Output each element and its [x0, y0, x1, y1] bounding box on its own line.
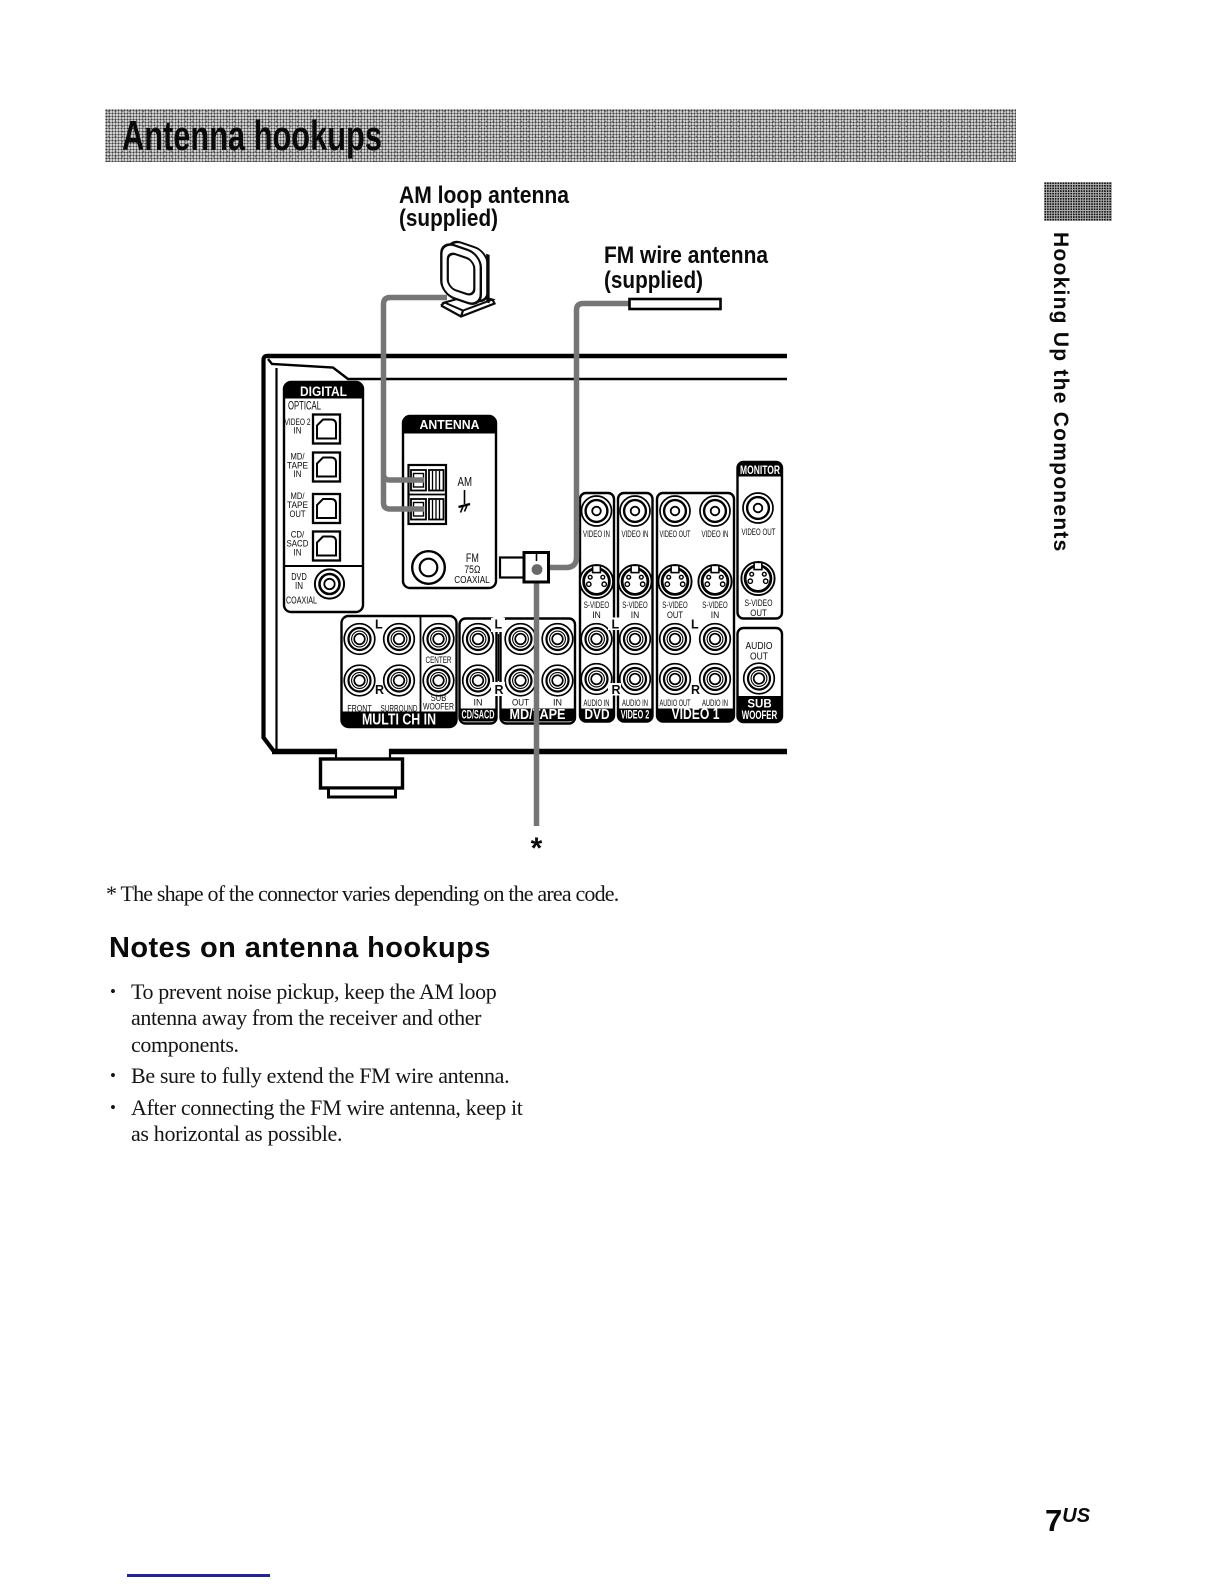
svg-text:FRONT: FRONT — [347, 704, 372, 715]
svg-text:FM wire antenna: FM wire antenna — [604, 242, 768, 269]
svg-text:IN: IN — [592, 610, 601, 621]
svg-text:MONITOR: MONITOR — [740, 465, 781, 477]
svg-text:IN: IN — [294, 469, 302, 480]
svg-text:OUT: OUT — [290, 509, 306, 520]
svg-text:VIDEO IN: VIDEO IN — [622, 529, 649, 540]
svg-text:OUT: OUT — [750, 651, 768, 663]
svg-text:VIDEO IN: VIDEO IN — [702, 529, 729, 540]
svg-text:OPTICAL: OPTICAL — [288, 401, 321, 413]
svg-text:VIDEO IN: VIDEO IN — [583, 529, 610, 540]
svg-text:(supplied): (supplied) — [399, 205, 498, 232]
svg-text:IN: IN — [631, 610, 640, 621]
svg-text:IN: IN — [711, 610, 720, 621]
svg-text:OUT: OUT — [750, 608, 767, 619]
svg-text:L: L — [375, 618, 383, 632]
svg-text:R: R — [375, 683, 384, 697]
svg-text:CENTER: CENTER — [426, 655, 452, 666]
svg-text:WOOFER: WOOFER — [423, 702, 454, 713]
svg-text:IN: IN — [474, 698, 483, 709]
svg-text:COAXIAL: COAXIAL — [286, 595, 317, 607]
svg-text:AM: AM — [458, 475, 473, 489]
svg-text:ANTENNA: ANTENNA — [420, 417, 481, 432]
svg-text:SUB: SUB — [747, 699, 771, 711]
svg-text:IN: IN — [294, 426, 302, 437]
svg-text:R: R — [495, 683, 504, 697]
svg-text:OUT: OUT — [667, 610, 683, 621]
svg-text:R: R — [612, 683, 621, 697]
svg-text:VIDEO OUT: VIDEO OUT — [742, 527, 776, 538]
svg-text:R: R — [691, 683, 700, 697]
svg-text:VIDEO OUT: VIDEO OUT — [660, 529, 691, 540]
svg-text:CD/SACD: CD/SACD — [462, 710, 495, 722]
svg-text:AUDIO IN: AUDIO IN — [584, 698, 610, 709]
svg-text:OUT: OUT — [512, 698, 529, 709]
svg-text:*: * — [531, 832, 543, 865]
svg-text:SURROUND: SURROUND — [381, 704, 418, 715]
svg-text:L: L — [691, 618, 699, 632]
svg-text:WOOFER: WOOFER — [742, 710, 778, 722]
svg-text:VIDEO 2: VIDEO 2 — [621, 708, 650, 722]
svg-text:AUDIO OUT: AUDIO OUT — [660, 698, 691, 709]
svg-text:COAXIAL: COAXIAL — [454, 574, 490, 586]
svg-text:(supplied): (supplied) — [604, 267, 703, 294]
svg-text:IN: IN — [295, 581, 303, 592]
svg-text:IN: IN — [553, 698, 562, 709]
svg-text:L: L — [612, 618, 620, 632]
svg-text:DIGITAL: DIGITAL — [300, 384, 347, 399]
svg-text:AUDIO IN: AUDIO IN — [622, 698, 648, 709]
svg-text:IN: IN — [294, 548, 302, 559]
svg-text:FM: FM — [466, 551, 479, 565]
svg-text:L: L — [495, 618, 503, 632]
svg-text:AUDIO IN: AUDIO IN — [702, 698, 728, 709]
